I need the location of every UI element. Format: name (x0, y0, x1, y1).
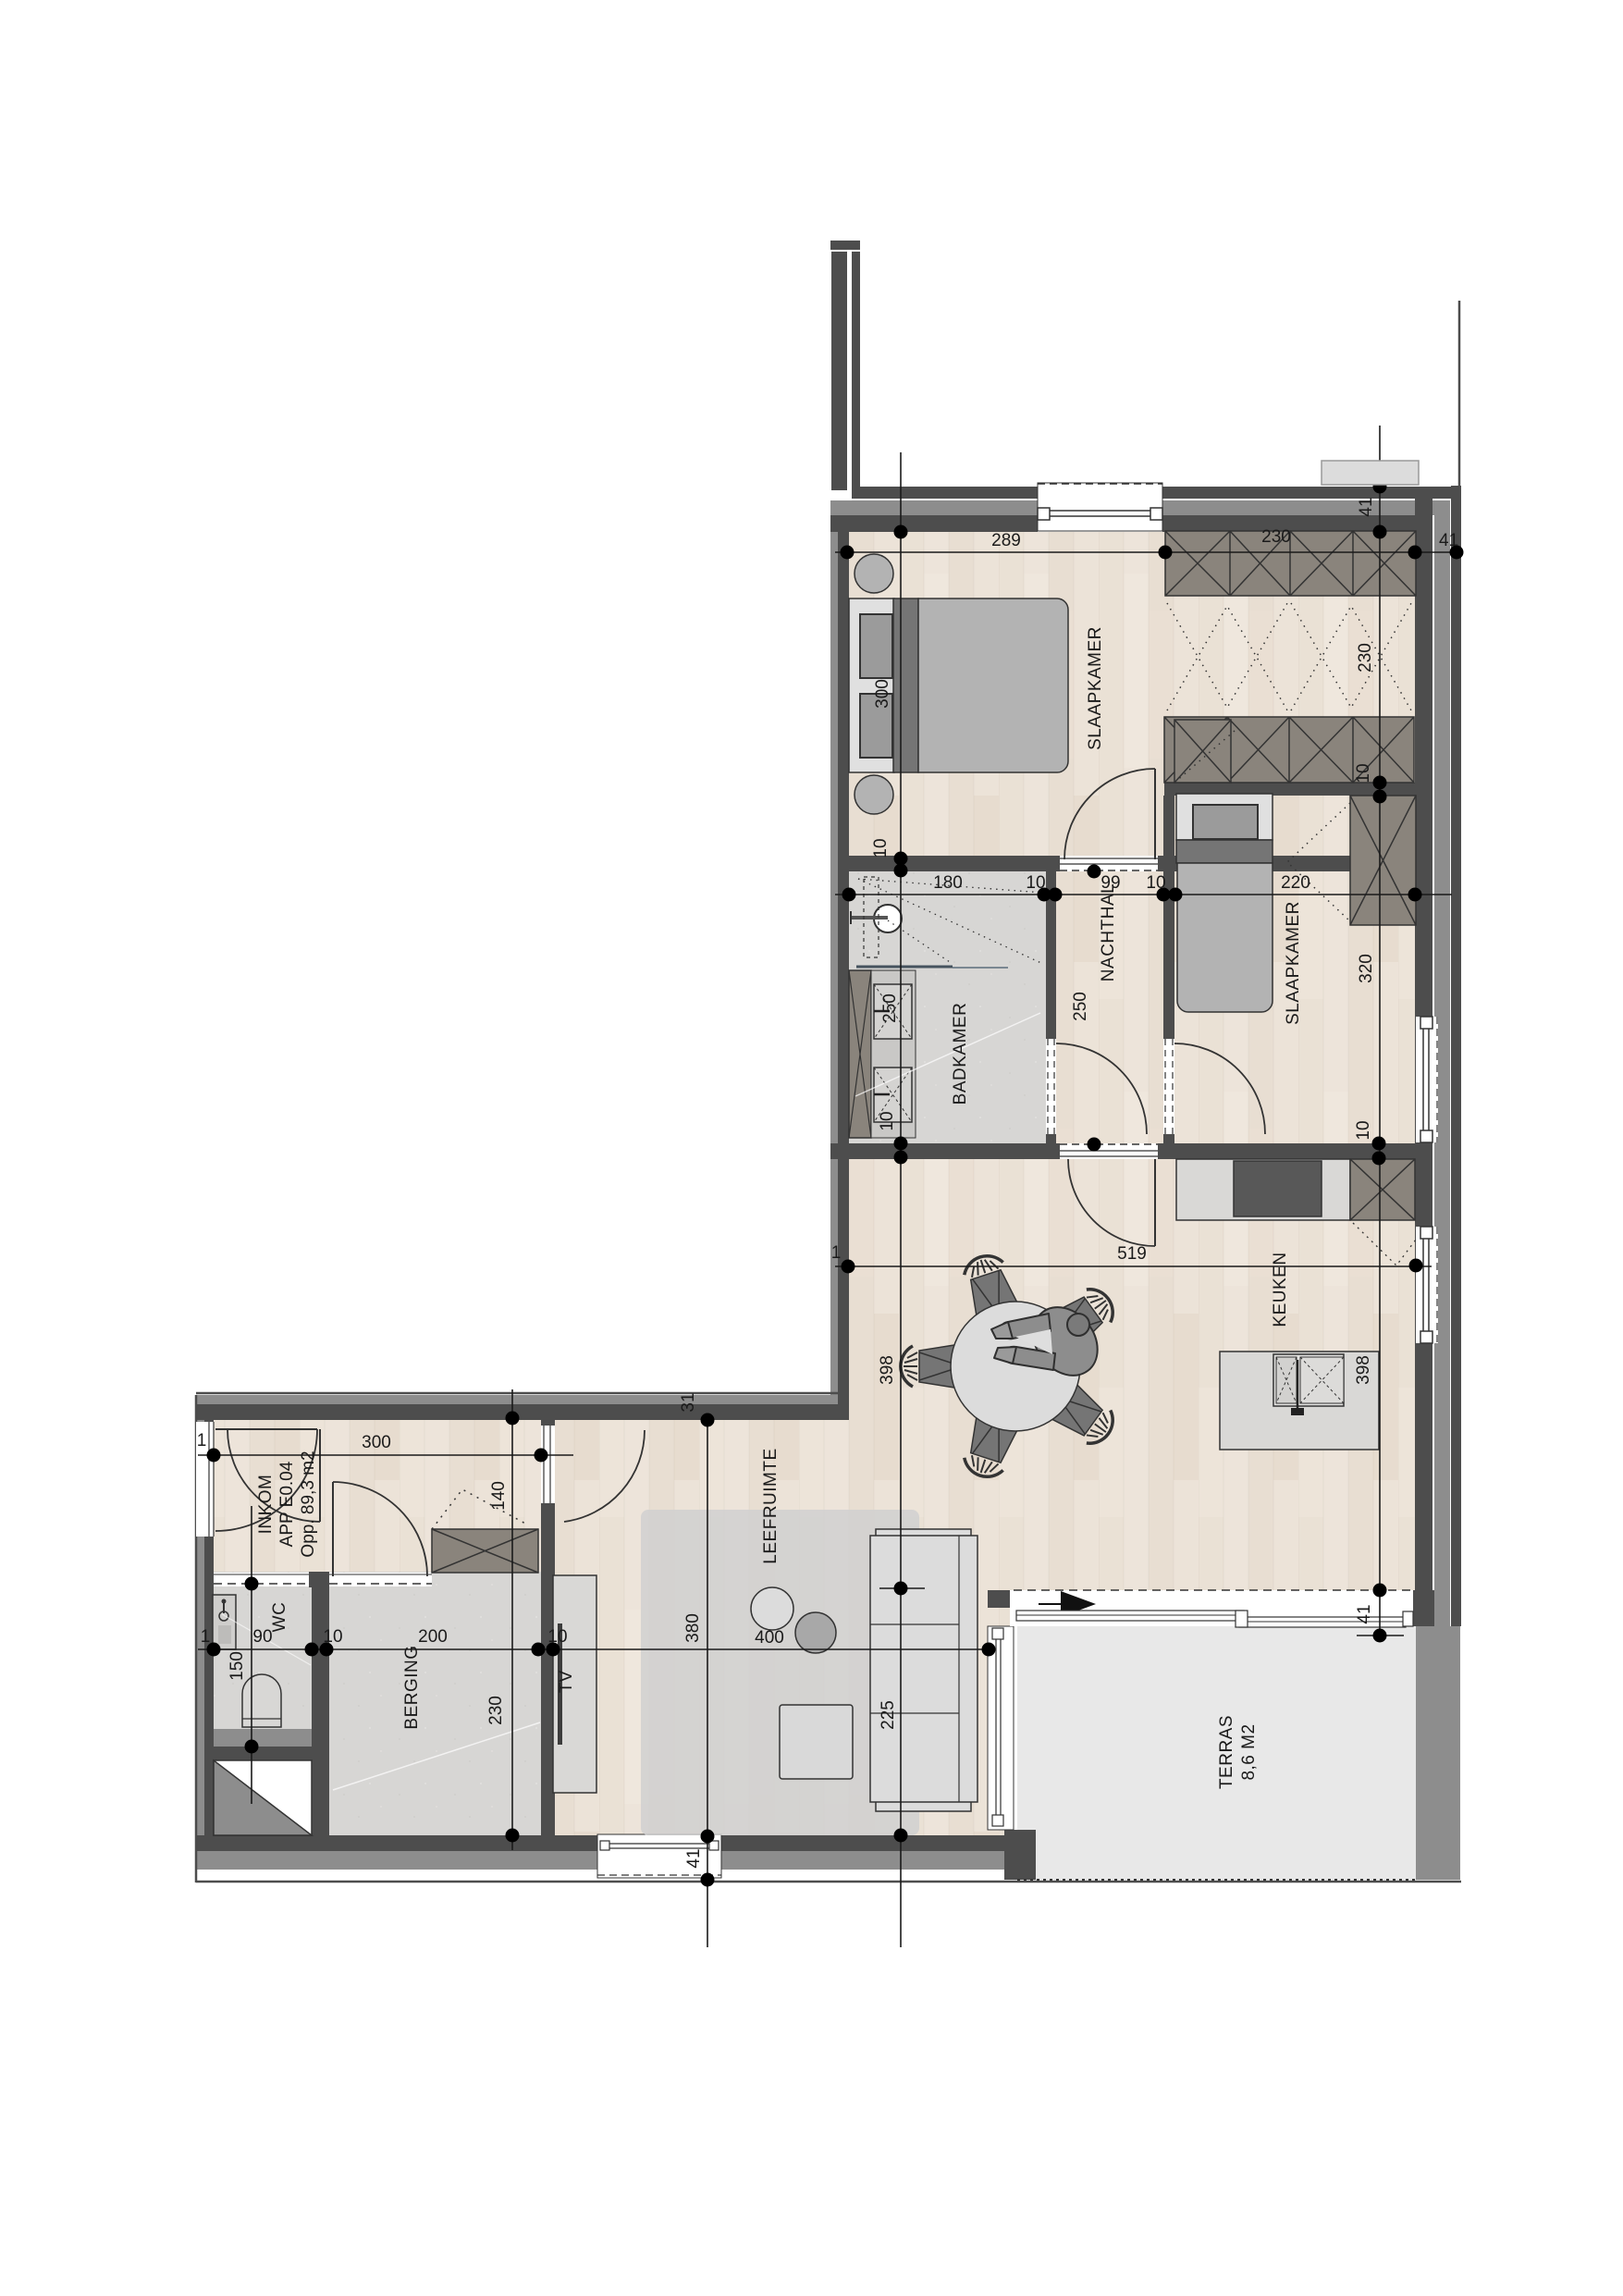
svg-text:10: 10 (878, 1111, 897, 1130)
svg-text:220: 220 (1281, 873, 1310, 893)
svg-text:10: 10 (1146, 873, 1165, 893)
svg-text:289: 289 (991, 531, 1021, 550)
svg-text:320: 320 (1357, 954, 1376, 983)
svg-text:400: 400 (755, 1628, 784, 1648)
svg-text:150: 150 (227, 1651, 247, 1681)
svg-text:380: 380 (683, 1613, 703, 1643)
svg-text:SLAAPKAMER: SLAAPKAMER (1086, 626, 1105, 750)
svg-text:31: 31 (679, 1392, 698, 1412)
svg-text:NACHTHAL: NACHTHAL (1099, 883, 1118, 981)
svg-text:TV: TV (557, 1671, 576, 1694)
svg-text:200: 200 (418, 1627, 448, 1647)
svg-text:8,6 M2: 8,6 M2 (1239, 1723, 1259, 1780)
svg-text:230: 230 (1356, 643, 1375, 673)
svg-text:APP E0.04: APP E0.04 (277, 1461, 297, 1547)
svg-text:230: 230 (1261, 527, 1291, 547)
svg-text:180: 180 (933, 873, 963, 893)
svg-text:1: 1 (201, 1627, 211, 1647)
svg-text:10: 10 (547, 1627, 567, 1647)
svg-text:1: 1 (197, 1431, 207, 1450)
svg-text:10: 10 (1354, 763, 1373, 783)
svg-text:INKOM: INKOM (256, 1475, 276, 1535)
svg-text:10: 10 (871, 838, 891, 858)
svg-text:519: 519 (1117, 1244, 1147, 1264)
svg-text:BADKAMER: BADKAMER (951, 1003, 970, 1105)
svg-text:230: 230 (486, 1696, 506, 1725)
svg-text:398: 398 (878, 1355, 897, 1385)
svg-text:BERGING: BERGING (402, 1645, 422, 1729)
svg-text:Opp. 89,3 m2: Opp. 89,3 m2 (299, 1450, 318, 1557)
svg-text:SLAAPKAMER: SLAAPKAMER (1284, 901, 1303, 1025)
svg-text:41: 41 (1439, 531, 1458, 550)
svg-text:250: 250 (880, 994, 900, 1023)
svg-text:300: 300 (362, 1433, 391, 1452)
svg-text:41: 41 (1355, 1604, 1374, 1623)
svg-text:10: 10 (323, 1627, 342, 1647)
svg-text:41: 41 (684, 1848, 704, 1868)
svg-text:1: 1 (831, 1243, 842, 1263)
svg-text:TERRAS: TERRAS (1217, 1715, 1236, 1789)
svg-text:41: 41 (1357, 497, 1376, 516)
svg-text:10: 10 (1026, 873, 1045, 893)
svg-text:398: 398 (1354, 1355, 1373, 1385)
svg-text:10: 10 (1354, 1120, 1373, 1140)
svg-text:KEUKEN: KEUKEN (1271, 1252, 1290, 1327)
svg-text:300: 300 (873, 679, 892, 709)
svg-text:WC: WC (270, 1602, 289, 1633)
svg-text:140: 140 (489, 1481, 509, 1511)
svg-text:250: 250 (1071, 992, 1090, 1021)
svg-text:LEEFRUIMTE: LEEFRUIMTE (761, 1448, 781, 1563)
svg-text:225: 225 (879, 1700, 898, 1730)
